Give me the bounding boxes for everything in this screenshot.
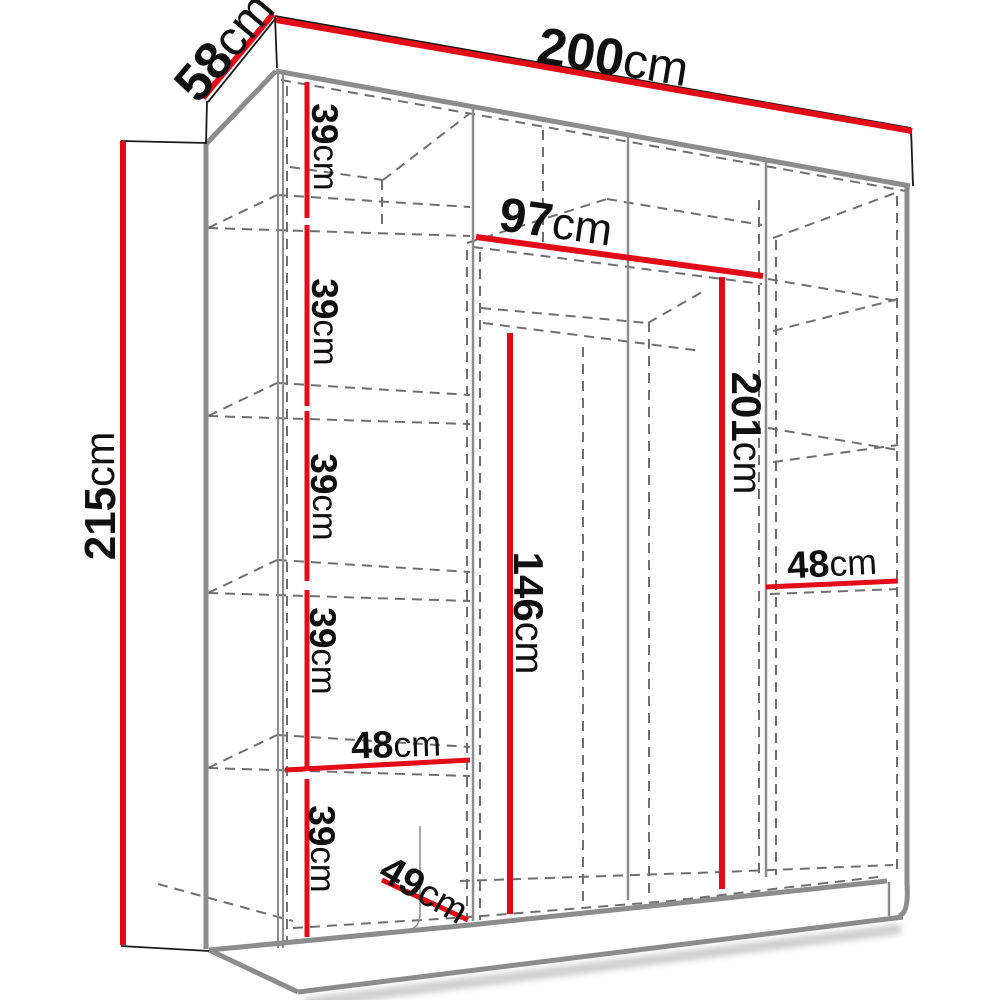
plinth-left-edge — [209, 950, 298, 992]
right-shelf-2 — [768, 428, 898, 462]
shelf-depth-edge — [208, 560, 277, 593]
dim-shelf-gap-2-label: 39cm — [305, 278, 346, 366]
dim-interior-depth-label: 49cm — [372, 847, 476, 932]
outline-and-extensions — [121, 16, 913, 951]
hanging-rail-top — [481, 308, 648, 323]
right-shelf-1 — [768, 192, 898, 331]
dim-shelf-gap-5-label: 39cm — [302, 805, 343, 893]
dim-shelf-gap-1-label: 39cm — [305, 103, 346, 191]
dim-hanging-height-label: 146cm — [506, 552, 553, 675]
dim-depth-label: 58cm — [163, 0, 286, 113]
right-shelf-3-edge — [770, 589, 898, 594]
shelf-depth-edge — [208, 735, 277, 768]
top-back-edge-mid — [607, 199, 762, 225]
floor-depth-edge — [158, 884, 293, 921]
shelf-depth-edge — [208, 383, 277, 416]
dim-interior-height-label: 201cm — [724, 372, 771, 495]
upper-shelf-edge — [473, 247, 762, 284]
dim-upper-width-label: 97cm — [496, 188, 616, 256]
shelf-front-edge — [208, 416, 470, 424]
left-shelf-2 — [208, 383, 470, 424]
height-extension-bottom — [121, 946, 209, 951]
height-extension-top — [121, 141, 207, 143]
dim-shelf-gap-3-label: 39cm — [304, 453, 345, 541]
diagram-canvas: 200cm 58cm 215cm 97cm 201cm 146cm 48cm 4… — [0, 0, 1000, 1000]
dim-width-label: 200cm — [533, 17, 692, 99]
shelf-depth-edge — [773, 445, 898, 462]
shelf-upper-diagonal — [773, 192, 898, 238]
dimension-lines — [123, 14, 912, 945]
left-shelf-3 — [208, 560, 470, 601]
hanging-rail-diagonal — [648, 292, 702, 323]
shelf-front-edge — [208, 228, 470, 236]
top-inner-edge — [281, 80, 906, 191]
left-shelf-1 — [208, 195, 470, 236]
front-right-edge — [899, 186, 907, 916]
dimension-labels: 200cm 58cm 215cm 97cm 201cm 146cm 48cm 4… — [76, 0, 878, 933]
shelf-front-edge — [208, 593, 470, 601]
top-depth-diagonal-left — [383, 114, 469, 180]
top-slab-front-edge — [276, 71, 910, 186]
floor-back-edge — [460, 865, 893, 881]
plinth-bottom-edge — [298, 917, 903, 992]
dim-left-shelf-width-label: 48cm — [350, 722, 441, 767]
shelf-depth-edge — [773, 299, 898, 331]
hanging-rail-bottom — [483, 323, 702, 351]
dim-height-label: 215cm — [76, 432, 125, 561]
shelf-front-edge — [768, 279, 898, 301]
shelf-depth-edge — [208, 195, 277, 228]
dim-shelf-gap-4-label: 39cm — [303, 607, 344, 695]
dim-right-shelf-width-label: 48cm — [786, 541, 878, 588]
floor-shadow — [305, 929, 901, 1000]
top-slab-thickness-right — [911, 128, 913, 186]
wardrobe-diagram: 200cm 58cm 215cm 97cm 201cm 146cm 48cm 4… — [0, 0, 1000, 1000]
